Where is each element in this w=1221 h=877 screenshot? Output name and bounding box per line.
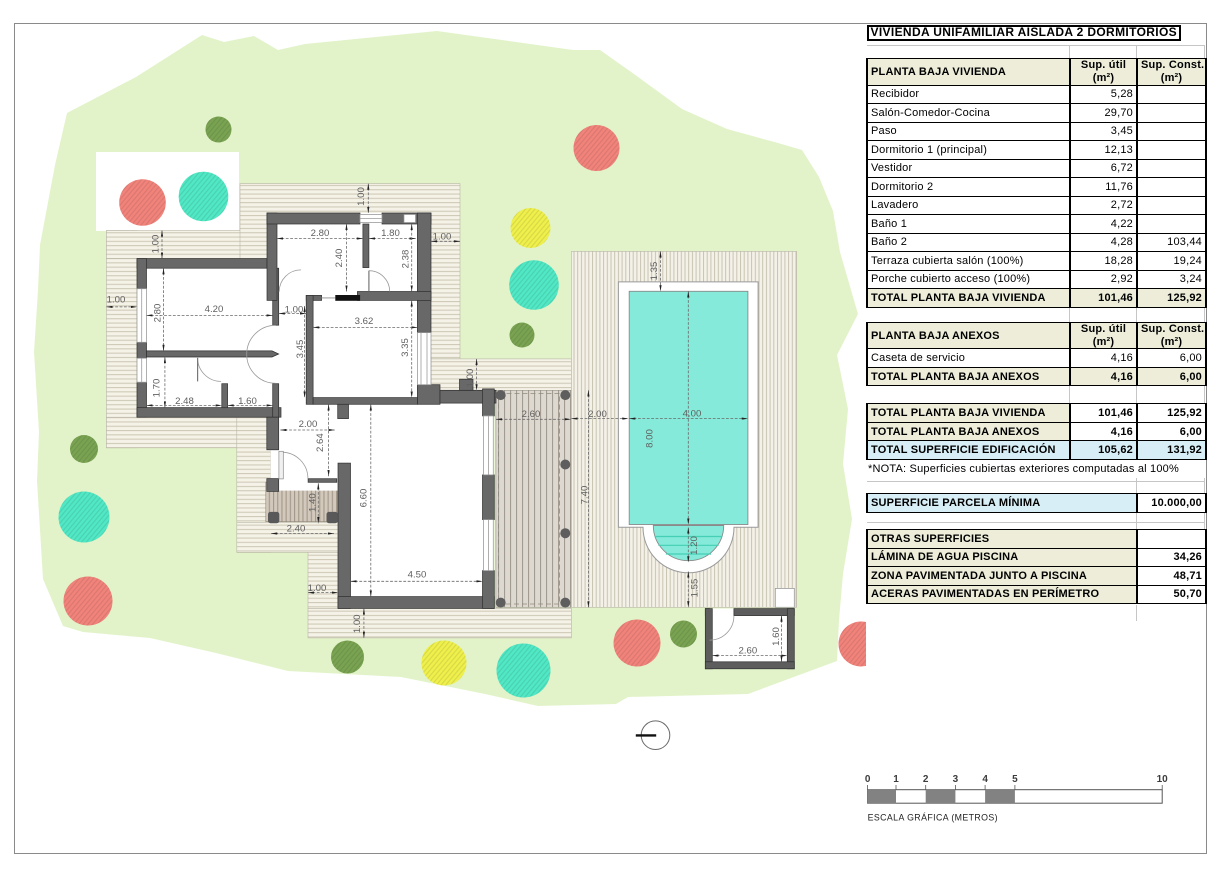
svg-text:2.00: 2.00 (299, 419, 318, 430)
svg-text:2.60: 2.60 (522, 409, 541, 420)
svg-text:6.60: 6.60 (358, 489, 369, 508)
svg-text:0: 0 (865, 774, 871, 785)
svg-text:1.00: 1.00 (151, 235, 162, 254)
svg-text:1.60: 1.60 (771, 627, 782, 646)
svg-text:1.20: 1.20 (689, 536, 700, 555)
svg-text:1.40: 1.40 (308, 493, 319, 512)
svg-text:1: 1 (893, 774, 899, 785)
svg-text:2.00: 2.00 (588, 409, 607, 420)
svg-text:1.00: 1.00 (285, 305, 304, 316)
svg-text:4: 4 (982, 774, 988, 785)
svg-text:1.00: 1.00 (465, 369, 476, 388)
svg-text:7.40: 7.40 (580, 486, 591, 505)
svg-text:1.70: 1.70 (152, 379, 163, 398)
svg-text:2.40: 2.40 (287, 524, 306, 535)
svg-text:1.55: 1.55 (690, 579, 701, 598)
svg-text:3.62: 3.62 (355, 316, 374, 327)
svg-text:4.20: 4.20 (205, 304, 224, 315)
svg-text:1.80: 1.80 (381, 228, 400, 239)
svg-text:5: 5 (1012, 774, 1018, 785)
svg-text:ESCALA GRÁFICA (METROS): ESCALA GRÁFICA (METROS) (868, 813, 998, 823)
svg-text:3.35: 3.35 (400, 338, 411, 357)
svg-text:8.00: 8.00 (645, 429, 656, 448)
svg-text:2.80: 2.80 (153, 304, 164, 323)
svg-text:1.00: 1.00 (107, 295, 126, 306)
svg-text:2: 2 (923, 774, 929, 785)
svg-text:1.00: 1.00 (308, 583, 327, 594)
svg-text:4.00: 4.00 (683, 409, 702, 420)
svg-text:1.00: 1.00 (352, 614, 363, 633)
svg-text:2.38: 2.38 (400, 250, 411, 269)
svg-text:1.60: 1.60 (238, 396, 257, 407)
svg-text:10: 10 (1157, 774, 1169, 785)
svg-text:2.60: 2.60 (739, 646, 758, 657)
svg-text:1.00: 1.00 (433, 232, 452, 243)
svg-text:3.45: 3.45 (295, 340, 306, 359)
svg-text:2.40: 2.40 (334, 249, 345, 268)
svg-text:2.80: 2.80 (311, 228, 330, 239)
svg-text:1.00: 1.00 (356, 187, 367, 206)
svg-text:4.50: 4.50 (408, 569, 427, 580)
svg-text:1.35: 1.35 (649, 262, 660, 281)
svg-text:3: 3 (953, 774, 959, 785)
svg-text:2.64: 2.64 (315, 433, 326, 452)
svg-text:2.48: 2.48 (175, 396, 194, 407)
